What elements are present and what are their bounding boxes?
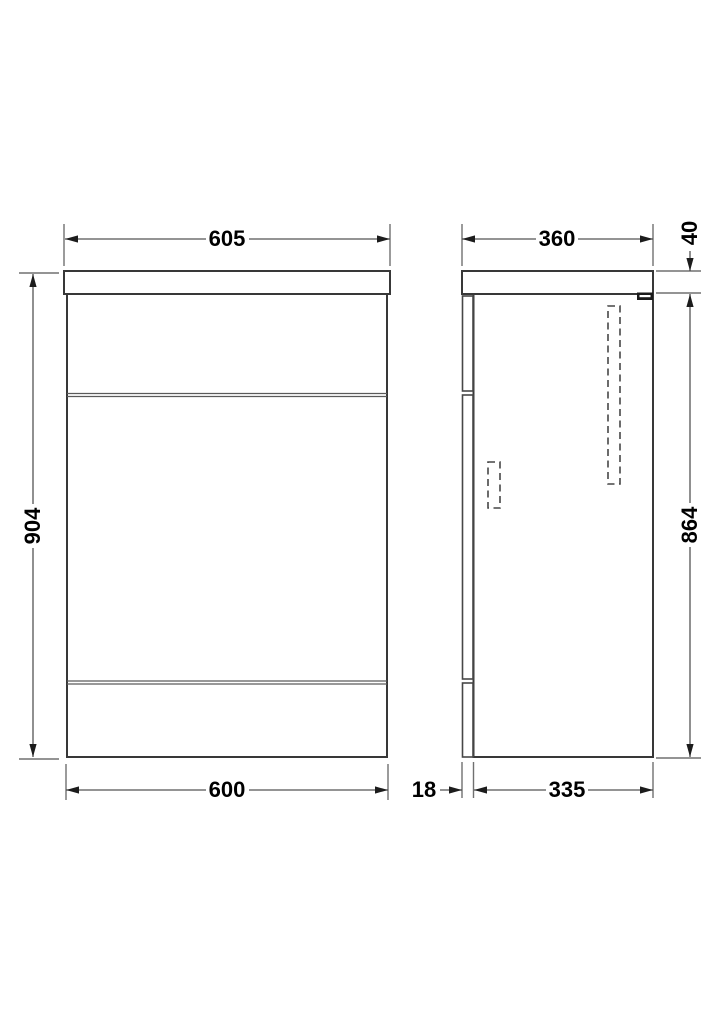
dimension-front-width-top: 605 [64, 224, 390, 266]
dimension-front-panel-thickness: 18 [412, 762, 474, 802]
side-door-panel-middle-segment [463, 395, 474, 679]
worktop-thickness-label: 40 [677, 221, 702, 245]
arrowhead-right [640, 786, 653, 793]
arrowhead-down [686, 744, 693, 757]
side-door-panel-top-segment [463, 296, 474, 391]
overall-height-label: 904 [20, 507, 45, 544]
arrowhead-up [686, 294, 693, 307]
arrowhead-right [375, 786, 388, 793]
wall-fixing-bracket-slot [640, 295, 651, 297]
dimension-cabinet-depth: 335 [474, 762, 653, 802]
side-worktop [462, 271, 653, 294]
front-carcass [67, 294, 387, 757]
arrowhead-left [474, 786, 487, 793]
arrowhead-right [449, 786, 462, 793]
dimension-worktop-thickness: 40 [656, 221, 702, 293]
front-width-bottom-label: 600 [209, 777, 246, 802]
drawing-canvas: 605 360 40 864 904 [0, 0, 724, 1024]
front-panel-thickness-label: 18 [412, 777, 436, 802]
arrowhead-right [377, 235, 390, 242]
side-carcass [474, 294, 654, 757]
arrowhead-right [640, 235, 653, 242]
front-worktop [64, 271, 390, 294]
arrowhead-down [686, 258, 693, 271]
front-width-top-label: 605 [209, 226, 246, 251]
technical-drawing: 605 360 40 864 904 [0, 0, 724, 1024]
arrowhead-left [462, 235, 475, 242]
arrowhead-left [66, 786, 79, 793]
arrowhead-left [65, 235, 78, 242]
side-depth-top-label: 360 [539, 226, 576, 251]
dimension-side-depth-top: 360 [462, 224, 653, 266]
dimension-front-width-bottom: 600 [66, 764, 388, 802]
cabinet-height-label: 864 [677, 506, 702, 543]
cabinet-depth-label: 335 [549, 777, 586, 802]
side-door-panel-plinth-segment [463, 683, 474, 757]
front-view [64, 271, 390, 757]
dimension-overall-height: 904 [19, 273, 59, 759]
arrowhead-up [29, 274, 36, 287]
dimension-cabinet-height: 864 [656, 294, 702, 758]
arrowhead-down [29, 744, 36, 757]
side-view [462, 271, 653, 757]
